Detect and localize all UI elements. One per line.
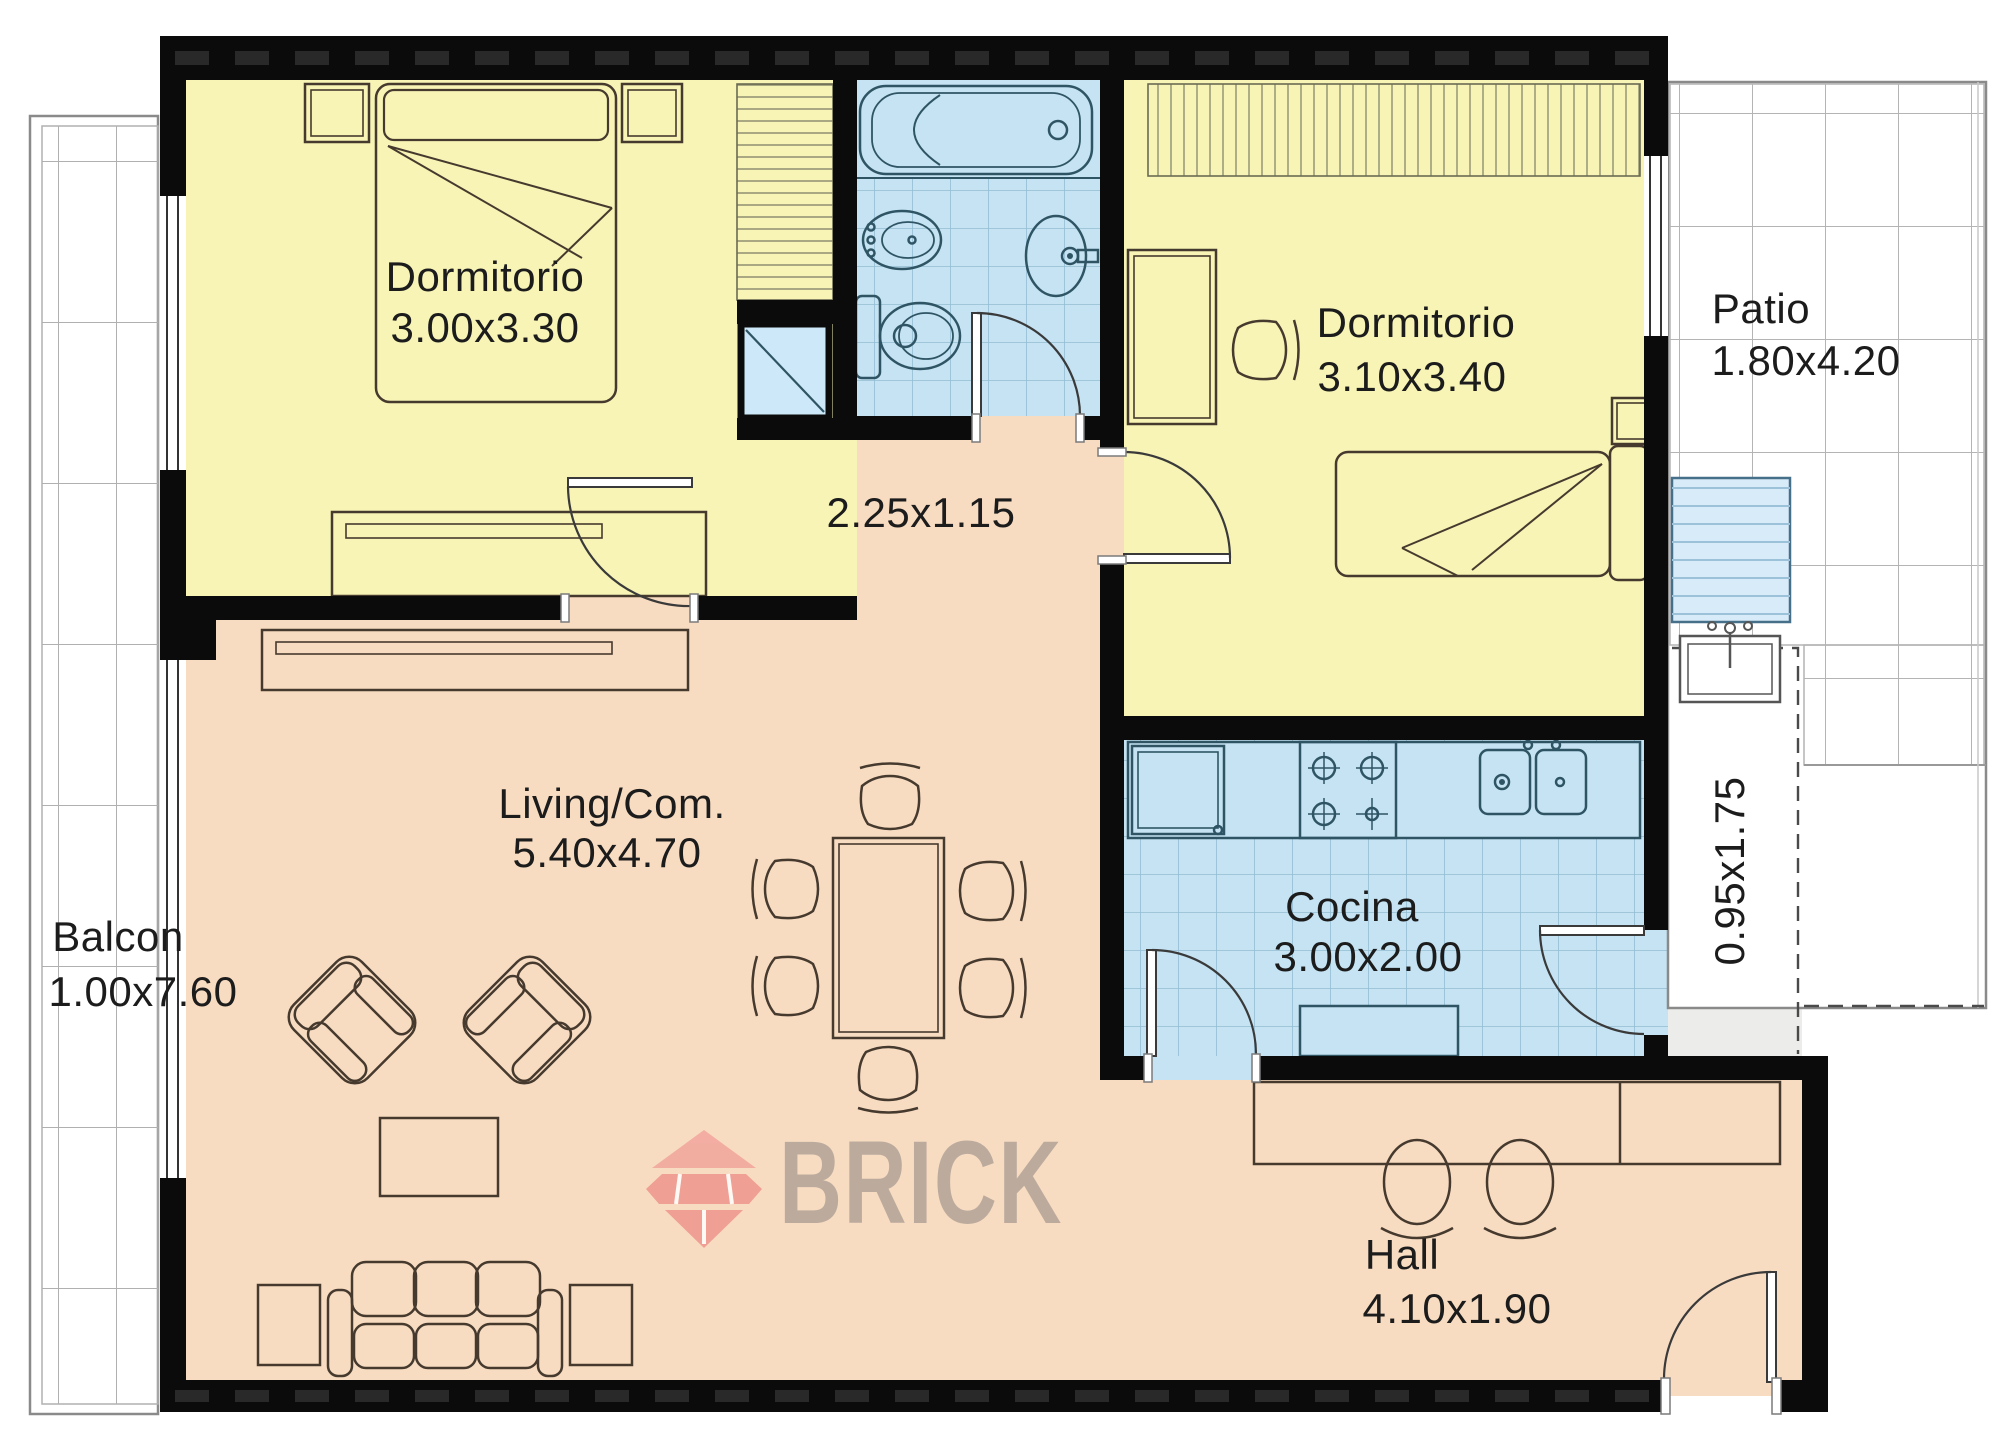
room-label-cocina: Cocina [1285,883,1419,930]
window-bedroom1 [160,196,186,470]
room-label-living: Living/Com. [498,780,725,827]
bedroom2-closet [1148,84,1640,176]
balcony-grid [42,126,158,1404]
laundry-dims: 0.95x1.75 [1706,777,1753,966]
room-label-hall: Hall [1365,1231,1439,1278]
floor-plan: BRICK Dormitorio 3.00x3.30 Dormitorio 3.… [0,0,2000,1444]
hall-floor [1100,1080,1802,1396]
bathroom-tiles [857,178,1124,416]
patio-grid-lower [1804,645,1984,765]
kitchen-table [1300,1006,1458,1056]
living-floor [184,620,1124,1396]
brick-logo-text: BRICK [779,1117,1063,1249]
room-dims-balcon: 1.00x7.60 [49,968,238,1015]
kitchen-counter [1128,742,1640,838]
bedroom1-closet [737,84,833,300]
passage-dims: 2.25x1.15 [827,489,1016,536]
bed-single [1336,446,1648,580]
floor-plan-drawing: BRICK Dormitorio 3.00x3.30 Dormitorio 3.… [0,0,2000,1444]
bed-double [376,84,616,402]
room-dims-dormitorio1: 3.00x3.30 [391,304,580,351]
balcony [30,116,158,1414]
bedroom1-duct [741,324,829,418]
water-heater [1672,478,1790,622]
room-label-dormitorio2: Dormitorio [1317,299,1516,346]
window-bedroom2 [1644,156,1668,336]
room-label-balcon: Balcon [52,913,183,960]
room-dims-hall: 4.10x1.90 [1363,1285,1552,1332]
room-label-dormitorio1: Dormitorio [386,253,585,300]
room-label-patio: Patio [1712,285,1810,332]
bedroom2-floor [1124,80,1668,740]
room-dims-living: 5.40x4.70 [513,829,702,876]
room-dims-patio: 1.80x4.20 [1712,337,1901,384]
room-dims-cocina: 3.00x2.00 [1274,933,1463,980]
room-dims-dormitorio2: 3.10x3.40 [1318,353,1507,400]
